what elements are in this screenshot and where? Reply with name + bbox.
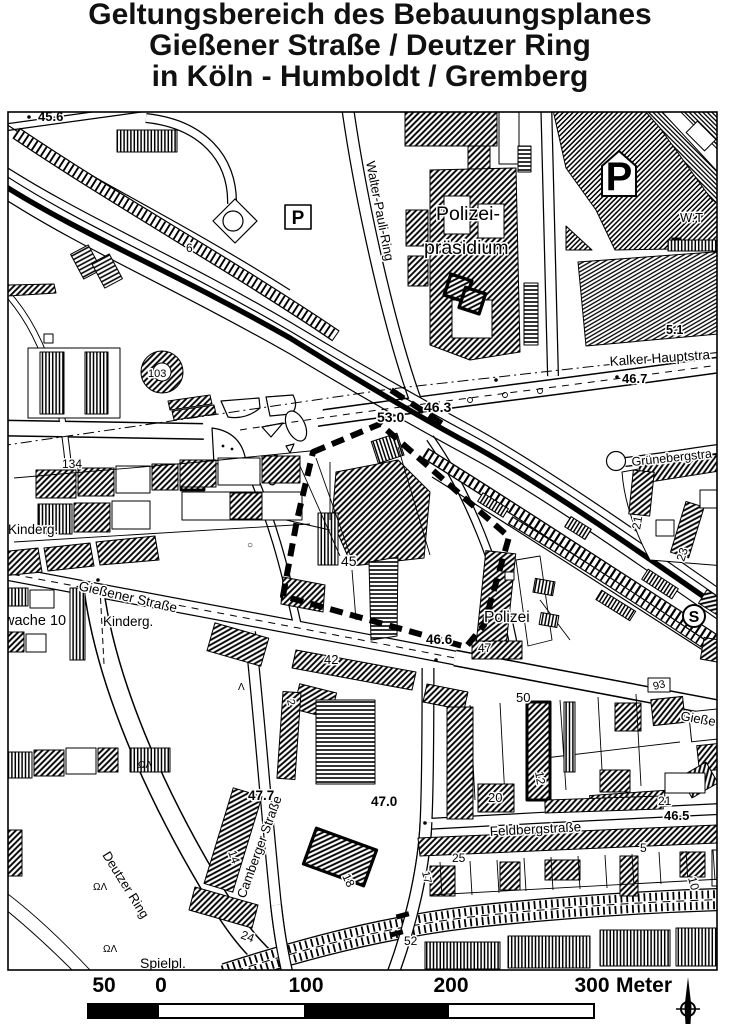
svg-text:Λ: Λ (238, 682, 245, 693)
svg-text:17: 17 (419, 870, 433, 884)
svg-text:52: 52 (404, 934, 418, 948)
svg-text:200: 200 (433, 974, 468, 997)
svg-text:Deutzer Ring: Deutzer Ring (99, 849, 152, 921)
svg-text:46.5: 46.5 (664, 808, 689, 823)
svg-text:○: ○ (247, 540, 253, 551)
svg-text:300: 300 (574, 974, 609, 997)
svg-text:45: 45 (341, 553, 357, 569)
svg-text:W.T: W.T (680, 210, 703, 225)
svg-text:46.7: 46.7 (622, 371, 647, 386)
svg-text:103: 103 (148, 368, 166, 380)
svg-text:6: 6 (186, 241, 193, 255)
svg-text:P: P (292, 208, 305, 229)
svg-text:50: 50 (92, 974, 115, 997)
svg-text:ΩΛ: ΩΛ (93, 882, 107, 893)
svg-text:42: 42 (324, 652, 338, 667)
svg-text:21: 21 (658, 794, 672, 808)
svg-text:S: S (689, 609, 700, 626)
svg-text:53.0: 53.0 (377, 409, 404, 425)
svg-text:0: 0 (155, 974, 167, 997)
svg-text:ΩΛ: ΩΛ (138, 760, 152, 771)
svg-text:47: 47 (478, 641, 492, 655)
svg-text:P: P (606, 155, 633, 199)
svg-text:100: 100 (288, 974, 323, 997)
svg-text:Polizei-: Polizei- (436, 203, 500, 225)
svg-text:25: 25 (452, 851, 466, 865)
svg-text:wache 10: wache 10 (3, 613, 66, 629)
svg-text:5: 5 (640, 841, 647, 855)
svg-text:5.1: 5.1 (666, 323, 683, 337)
svg-text:präsidium: präsidium (424, 237, 509, 259)
svg-text:Polizei: Polizei (484, 609, 530, 626)
svg-text:ΩΛ: ΩΛ (103, 944, 117, 955)
svg-text:47.0: 47.0 (371, 794, 397, 809)
svg-text:46.3: 46.3 (424, 399, 451, 415)
svg-text:50: 50 (516, 690, 530, 705)
svg-text:Kinderg.: Kinderg. (103, 614, 153, 629)
svg-text:Meter: Meter (616, 974, 672, 997)
svg-text:Spielpl.: Spielpl. (140, 955, 186, 971)
svg-text:46.6: 46.6 (426, 632, 453, 647)
svg-text:12: 12 (532, 770, 548, 786)
svg-text:Kinderg.: Kinderg. (8, 522, 58, 537)
svg-text:21: 21 (629, 515, 645, 531)
svg-text:20: 20 (488, 790, 502, 805)
svg-text:134: 134 (62, 457, 82, 471)
